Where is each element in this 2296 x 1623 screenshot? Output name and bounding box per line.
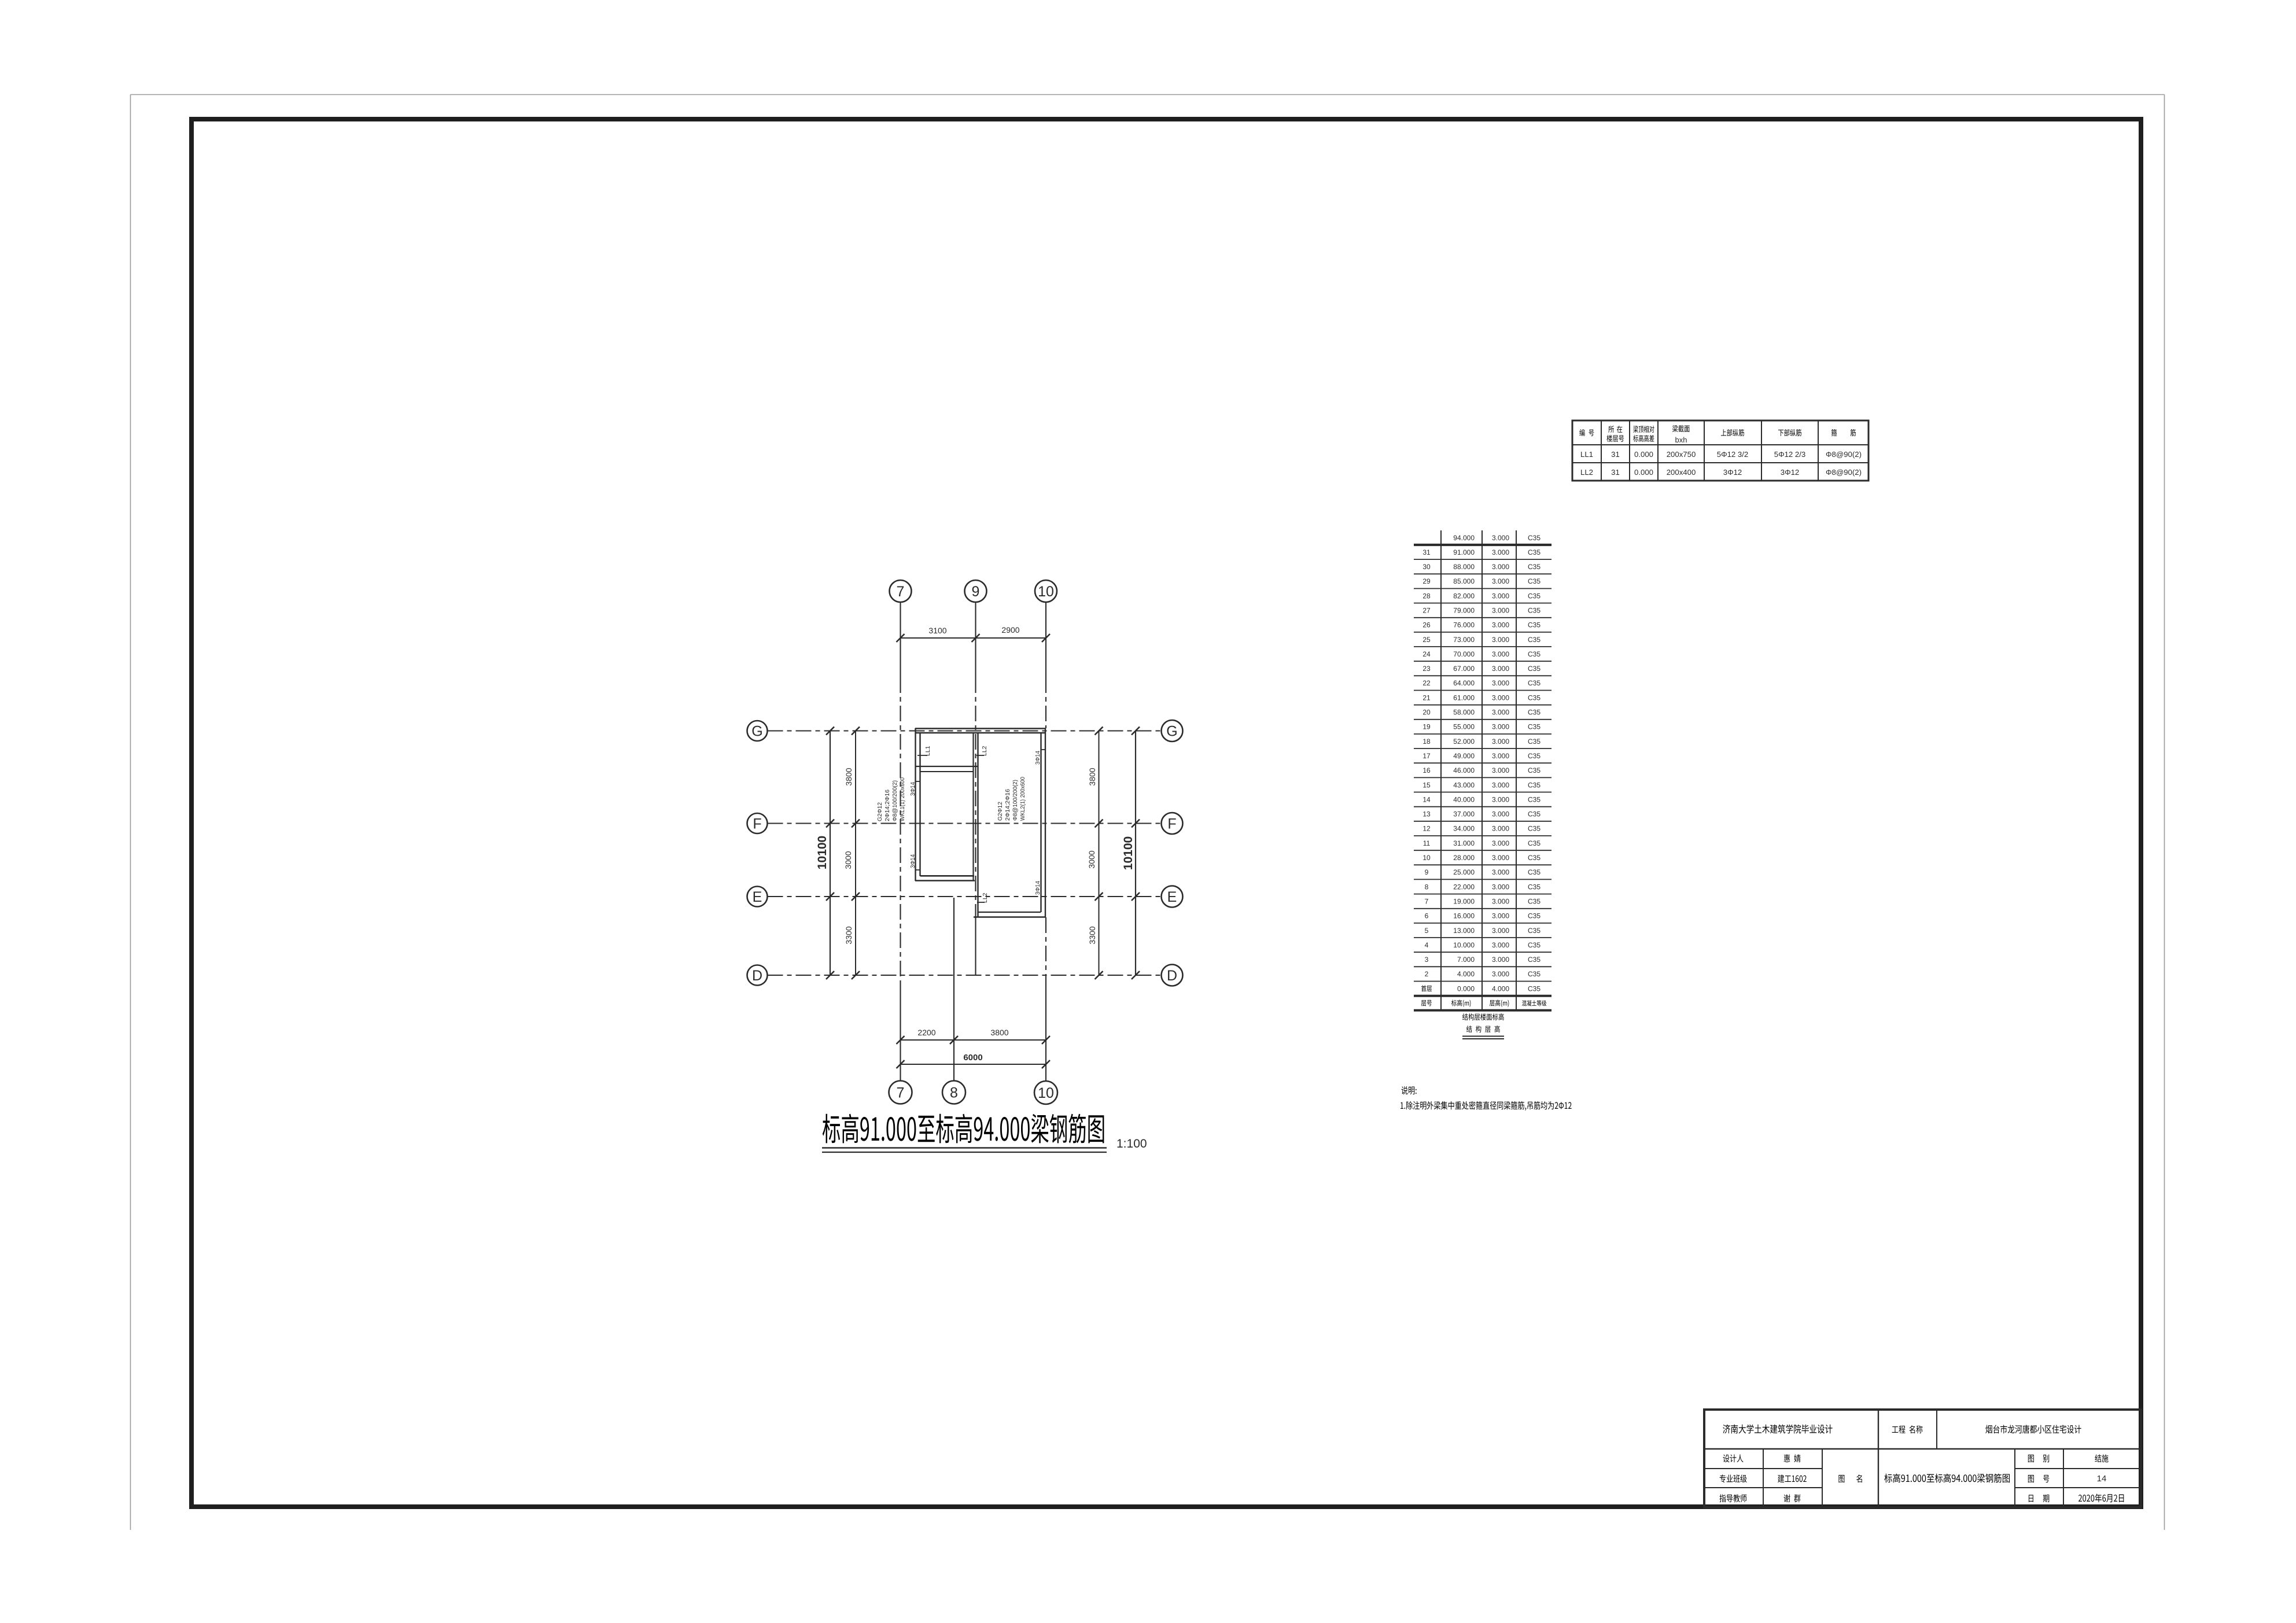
svg-text:3800: 3800 — [1088, 768, 1097, 785]
svg-text:26: 26 — [1422, 621, 1431, 629]
svg-text:79.000: 79.000 — [1453, 607, 1475, 615]
svg-text:C35: C35 — [1528, 854, 1541, 862]
svg-text:C35: C35 — [1528, 621, 1541, 629]
svg-text:0.000: 0.000 — [1634, 450, 1653, 459]
svg-text:C35: C35 — [1528, 825, 1541, 833]
svg-text:3.000: 3.000 — [1492, 534, 1509, 542]
svg-text:LL1: LL1 — [924, 746, 931, 756]
svg-text:3Φ14: 3Φ14 — [1034, 751, 1041, 765]
svg-text:6000: 6000 — [963, 1053, 982, 1063]
svg-text:G2Φ12: G2Φ12 — [877, 802, 883, 821]
svg-text:7: 7 — [897, 1085, 905, 1101]
svg-text:3.000: 3.000 — [1492, 563, 1509, 571]
svg-text:G2Φ12: G2Φ12 — [997, 802, 1004, 821]
svg-text:37.000: 37.000 — [1453, 810, 1475, 818]
svg-text:16.000: 16.000 — [1453, 912, 1475, 920]
svg-text:28: 28 — [1422, 592, 1431, 600]
svg-text:3.000: 3.000 — [1492, 854, 1509, 862]
svg-text:10: 10 — [1038, 1085, 1054, 1101]
svg-text:200x750: 200x750 — [1667, 450, 1696, 459]
svg-text:13.000: 13.000 — [1453, 927, 1475, 935]
svg-text:D: D — [1167, 968, 1177, 984]
svg-text:G: G — [1166, 724, 1177, 740]
svg-text:C35: C35 — [1528, 795, 1541, 803]
svg-text:55.000: 55.000 — [1453, 723, 1475, 731]
svg-text:3.000: 3.000 — [1492, 592, 1509, 600]
svg-text:3800: 3800 — [990, 1028, 1008, 1037]
svg-text:3.000: 3.000 — [1492, 694, 1509, 702]
svg-text:64.000: 64.000 — [1453, 679, 1475, 687]
svg-text:E: E — [753, 889, 762, 905]
svg-text:13: 13 — [1422, 810, 1431, 818]
svg-text:LL2: LL2 — [1580, 468, 1593, 477]
svg-text:88.000: 88.000 — [1453, 563, 1475, 571]
svg-text:4.000: 4.000 — [1457, 970, 1475, 978]
svg-text:3.000: 3.000 — [1492, 898, 1509, 906]
svg-text:20: 20 — [1422, 709, 1431, 717]
svg-text:F: F — [1167, 816, 1176, 832]
svg-text:31.000: 31.000 — [1453, 839, 1475, 847]
svg-text:2Φ14;2Φ16: 2Φ14;2Φ16 — [1005, 789, 1011, 821]
svg-text:3.000: 3.000 — [1492, 825, 1509, 833]
svg-text:C35: C35 — [1528, 665, 1541, 673]
svg-text:3.000: 3.000 — [1492, 737, 1509, 746]
svg-text:8: 8 — [950, 1085, 958, 1101]
svg-text:43.000: 43.000 — [1453, 781, 1475, 789]
svg-text:10: 10 — [1422, 854, 1431, 862]
svg-text:3.000: 3.000 — [1492, 883, 1509, 891]
svg-text:Φ8@90(2): Φ8@90(2) — [1826, 450, 1862, 459]
svg-text:3300: 3300 — [1088, 926, 1097, 944]
svg-text:C35: C35 — [1528, 941, 1541, 949]
svg-text:3.000: 3.000 — [1492, 795, 1509, 803]
svg-text:C35: C35 — [1528, 577, 1541, 585]
svg-text:31: 31 — [1611, 468, 1620, 477]
svg-text:2200: 2200 — [917, 1028, 935, 1037]
svg-text:7.000: 7.000 — [1457, 956, 1475, 964]
svg-text:3.000: 3.000 — [1492, 752, 1509, 760]
svg-text:3Φ12: 3Φ12 — [1781, 468, 1800, 477]
svg-text:Φ8@90(2): Φ8@90(2) — [1826, 468, 1862, 477]
svg-text:2Φ14;2Φ16: 2Φ14;2Φ16 — [885, 790, 891, 821]
svg-text:3.000: 3.000 — [1492, 577, 1509, 585]
svg-text:3300: 3300 — [844, 926, 853, 944]
svg-text:82.000: 82.000 — [1453, 592, 1475, 600]
svg-text:73.000: 73.000 — [1453, 636, 1475, 644]
svg-text:0.000: 0.000 — [1457, 984, 1475, 993]
svg-text:12: 12 — [1422, 825, 1431, 833]
svg-text:9: 9 — [972, 584, 980, 600]
svg-text:10.000: 10.000 — [1453, 941, 1475, 949]
svg-text:31: 31 — [1611, 450, 1620, 459]
svg-text:C35: C35 — [1528, 607, 1541, 615]
svg-text:22: 22 — [1422, 679, 1431, 687]
svg-text:C35: C35 — [1528, 927, 1541, 935]
svg-text:3.000: 3.000 — [1492, 665, 1509, 673]
svg-text:C35: C35 — [1528, 752, 1541, 760]
svg-text:91.000: 91.000 — [1453, 548, 1475, 556]
svg-text:27: 27 — [1422, 607, 1431, 615]
svg-text:21: 21 — [1422, 694, 1431, 702]
svg-text:18: 18 — [1422, 737, 1431, 746]
svg-text:4: 4 — [1425, 941, 1429, 949]
svg-text:3.000: 3.000 — [1492, 548, 1509, 556]
svg-text:3.000: 3.000 — [1492, 839, 1509, 847]
svg-text:Φ8@100/200(2): Φ8@100/200(2) — [892, 780, 898, 821]
svg-text:3100: 3100 — [928, 626, 946, 635]
svg-text:C35: C35 — [1528, 548, 1541, 556]
svg-text:46.000: 46.000 — [1453, 766, 1475, 774]
svg-text:76.000: 76.000 — [1453, 621, 1475, 629]
svg-text:3.000: 3.000 — [1492, 912, 1509, 920]
svg-text:F: F — [753, 816, 761, 832]
svg-text:3.000: 3.000 — [1492, 970, 1509, 978]
svg-text:C35: C35 — [1528, 781, 1541, 789]
svg-text:C35: C35 — [1528, 883, 1541, 891]
svg-text:C35: C35 — [1528, 563, 1541, 571]
svg-text:49.000: 49.000 — [1453, 752, 1475, 760]
svg-text:31: 31 — [1422, 548, 1431, 556]
svg-text:52.000: 52.000 — [1453, 737, 1475, 746]
svg-text:29: 29 — [1422, 577, 1431, 585]
svg-text:10: 10 — [1038, 584, 1054, 600]
svg-text:C35: C35 — [1528, 766, 1541, 774]
svg-text:3.000: 3.000 — [1492, 723, 1509, 731]
svg-text:7: 7 — [1425, 898, 1429, 906]
svg-text:3Φ12: 3Φ12 — [1723, 468, 1742, 477]
svg-text:24: 24 — [1422, 650, 1431, 658]
svg-text:5: 5 — [1425, 927, 1429, 935]
svg-text:3Φ14: 3Φ14 — [909, 854, 916, 868]
svg-text:C35: C35 — [1528, 912, 1541, 920]
svg-text:11: 11 — [1423, 839, 1431, 847]
svg-text:58.000: 58.000 — [1453, 709, 1475, 717]
svg-text:7: 7 — [897, 584, 905, 600]
svg-text:3.000: 3.000 — [1492, 621, 1509, 629]
svg-text:19: 19 — [1422, 723, 1431, 731]
svg-text:3.000: 3.000 — [1492, 766, 1509, 774]
svg-text:61.000: 61.000 — [1453, 694, 1475, 702]
svg-text:C35: C35 — [1528, 737, 1541, 746]
svg-text:28.000: 28.000 — [1453, 854, 1475, 862]
svg-text:34.000: 34.000 — [1453, 825, 1475, 833]
svg-text:D: D — [752, 968, 762, 984]
svg-text:C35: C35 — [1528, 970, 1541, 978]
svg-text:LL2: LL2 — [981, 746, 988, 756]
svg-text:23: 23 — [1422, 665, 1431, 673]
svg-text:E: E — [1167, 889, 1177, 905]
svg-text:C35: C35 — [1528, 650, 1541, 658]
svg-text:14: 14 — [1422, 795, 1431, 803]
svg-text:3000: 3000 — [843, 851, 853, 869]
svg-text:3.000: 3.000 — [1492, 650, 1509, 658]
svg-text:3.000: 3.000 — [1492, 868, 1509, 876]
svg-text:1:100: 1:100 — [1116, 1137, 1147, 1150]
svg-text:C35: C35 — [1528, 898, 1541, 906]
svg-text:25: 25 — [1422, 636, 1431, 644]
svg-text:C35: C35 — [1528, 709, 1541, 717]
svg-text:C35: C35 — [1528, 956, 1541, 964]
svg-text:3.000: 3.000 — [1492, 810, 1509, 818]
svg-text:3.000: 3.000 — [1492, 636, 1509, 644]
svg-text:C35: C35 — [1528, 679, 1541, 687]
svg-text:LL1: LL1 — [1580, 450, 1593, 459]
svg-text:17: 17 — [1422, 752, 1431, 760]
svg-text:C35: C35 — [1528, 723, 1541, 731]
svg-text:22.000: 22.000 — [1453, 883, 1475, 891]
svg-text:LL2: LL2 — [982, 892, 989, 903]
svg-text:C35: C35 — [1528, 694, 1541, 702]
svg-text:C35: C35 — [1528, 839, 1541, 847]
svg-text:Φ8@100/200(2): Φ8@100/200(2) — [1012, 780, 1019, 821]
svg-text:3.000: 3.000 — [1492, 679, 1509, 687]
svg-text:3Φ14: 3Φ14 — [1034, 881, 1041, 895]
svg-text:WKL2(1) 200x600: WKL2(1) 200x600 — [1020, 777, 1026, 821]
svg-text:C35: C35 — [1528, 984, 1541, 993]
svg-text:85.000: 85.000 — [1453, 577, 1475, 585]
svg-text:C35: C35 — [1528, 868, 1541, 876]
svg-text:5Φ12 3/2: 5Φ12 3/2 — [1717, 450, 1749, 459]
svg-text:30: 30 — [1422, 563, 1431, 571]
svg-text:70.000: 70.000 — [1453, 650, 1475, 658]
svg-text:3.000: 3.000 — [1492, 956, 1509, 964]
svg-text:3.000: 3.000 — [1492, 709, 1509, 717]
svg-text:3.000: 3.000 — [1492, 941, 1509, 949]
svg-text:40.000: 40.000 — [1453, 795, 1475, 803]
svg-text:16: 16 — [1422, 766, 1431, 774]
svg-text:3.000: 3.000 — [1492, 607, 1509, 615]
svg-text:200x400: 200x400 — [1667, 468, 1696, 477]
svg-text:WKL1(1) 200x600: WKL1(1) 200x600 — [900, 777, 906, 821]
svg-text:3: 3 — [1425, 956, 1429, 964]
svg-text:5Φ12 2/3: 5Φ12 2/3 — [1774, 450, 1806, 459]
svg-text:0.000: 0.000 — [1634, 468, 1653, 477]
svg-text:4.000: 4.000 — [1492, 984, 1509, 993]
svg-text:19.000: 19.000 — [1453, 898, 1475, 906]
svg-text:C35: C35 — [1528, 810, 1541, 818]
svg-text:2900: 2900 — [1001, 625, 1019, 635]
svg-text:3.000: 3.000 — [1492, 781, 1509, 789]
svg-text:3.000: 3.000 — [1492, 927, 1509, 935]
svg-text:C35: C35 — [1528, 636, 1541, 644]
svg-text:94.000: 94.000 — [1453, 534, 1475, 542]
svg-text:6: 6 — [1425, 912, 1429, 920]
svg-text:14: 14 — [2097, 1474, 2107, 1484]
svg-text:15: 15 — [1422, 781, 1431, 789]
svg-text:10100: 10100 — [1122, 836, 1135, 870]
svg-text:2: 2 — [1425, 970, 1429, 978]
svg-text:3800: 3800 — [844, 768, 853, 785]
svg-text:10100: 10100 — [816, 836, 829, 869]
svg-text:8: 8 — [1425, 883, 1429, 891]
svg-text:9: 9 — [1425, 868, 1429, 876]
svg-text:67.000: 67.000 — [1453, 665, 1475, 673]
svg-text:C35: C35 — [1528, 592, 1541, 600]
svg-text:3000: 3000 — [1087, 850, 1096, 868]
svg-text:3Φ14: 3Φ14 — [909, 782, 916, 796]
svg-text:25.000: 25.000 — [1453, 868, 1475, 876]
svg-text:bxh: bxh — [1675, 436, 1687, 444]
svg-text:C35: C35 — [1528, 534, 1541, 542]
svg-text:G: G — [751, 724, 762, 740]
